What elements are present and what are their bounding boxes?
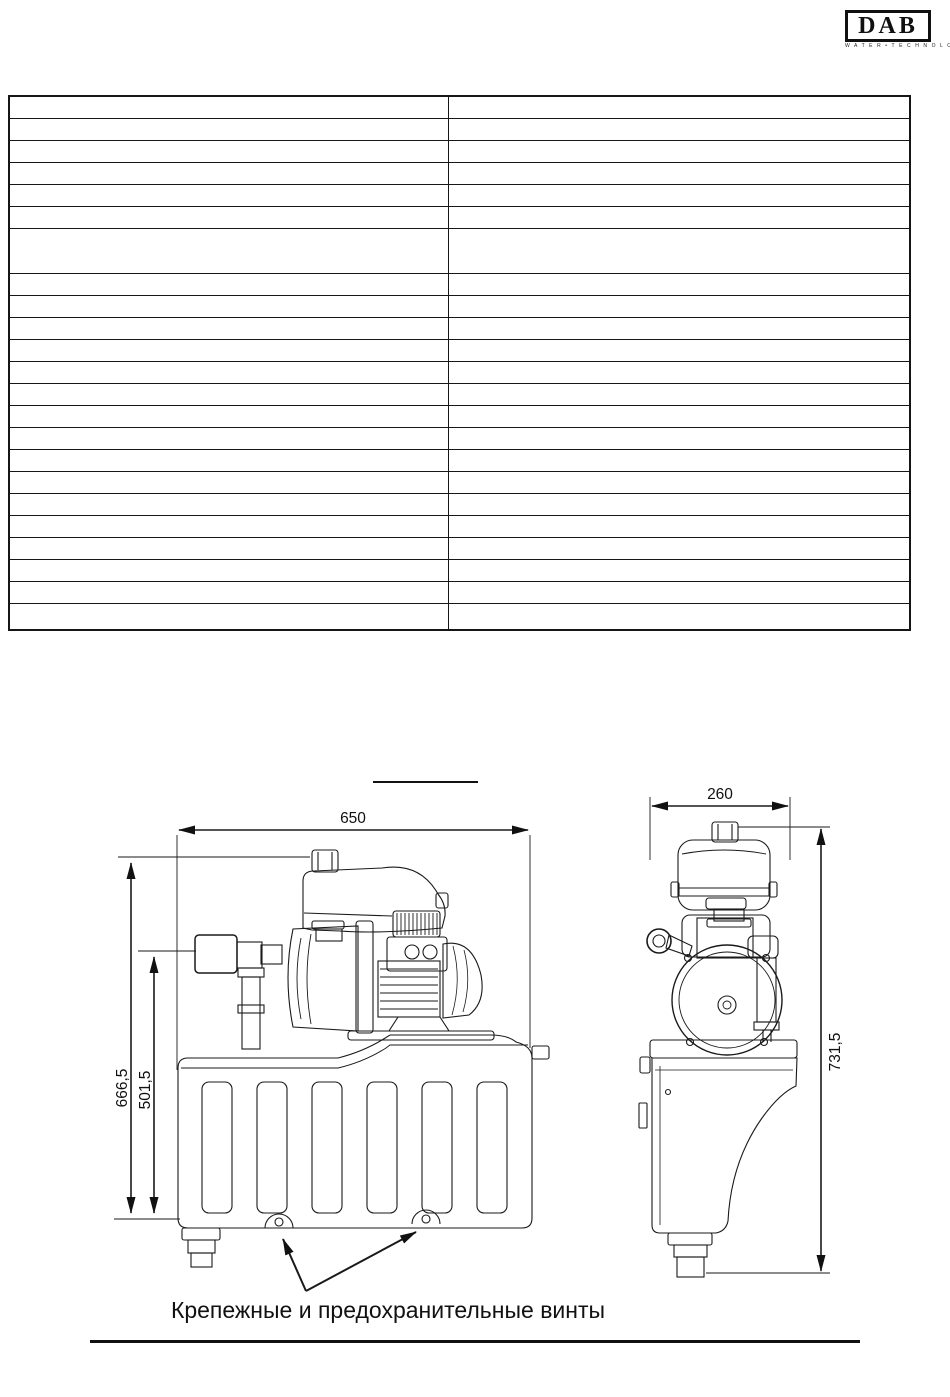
fixing-screw-left <box>275 1218 283 1226</box>
pump-body <box>288 921 494 1040</box>
side-height-dimension <box>706 827 830 1273</box>
front-view-drawing <box>114 830 549 1291</box>
figure-caption: Крепежные и предохранительные винты <box>171 1297 605 1323</box>
dab-badge <box>718 996 736 1014</box>
dimension-drawing: 650 666,5 501,5 260 731,5 Крепежные и пр… <box>0 0 950 1397</box>
motor-vent-grille <box>387 911 447 971</box>
side-width-label: 260 <box>707 786 733 803</box>
fixing-screw-right <box>422 1215 430 1223</box>
screw-callout-arrows <box>283 1232 416 1291</box>
inlet-fitting <box>195 935 282 1049</box>
side-height-label: 731,5 <box>827 1033 844 1072</box>
front-inlet-height-label: 501,5 <box>137 1071 154 1110</box>
side-control-unit <box>671 822 777 927</box>
front-width-label: 650 <box>340 810 366 827</box>
tank-front <box>178 1035 549 1267</box>
side-motor <box>647 915 782 1055</box>
side-view-drawing <box>639 797 830 1277</box>
tank-side <box>639 1040 797 1277</box>
front-width-dimension <box>177 830 530 1070</box>
front-total-height-label: 666,5 <box>114 1069 131 1108</box>
manual-page: { "header": { "logo_text": "DAB", "logo_… <box>0 0 950 1397</box>
footer-rule <box>90 1340 860 1343</box>
